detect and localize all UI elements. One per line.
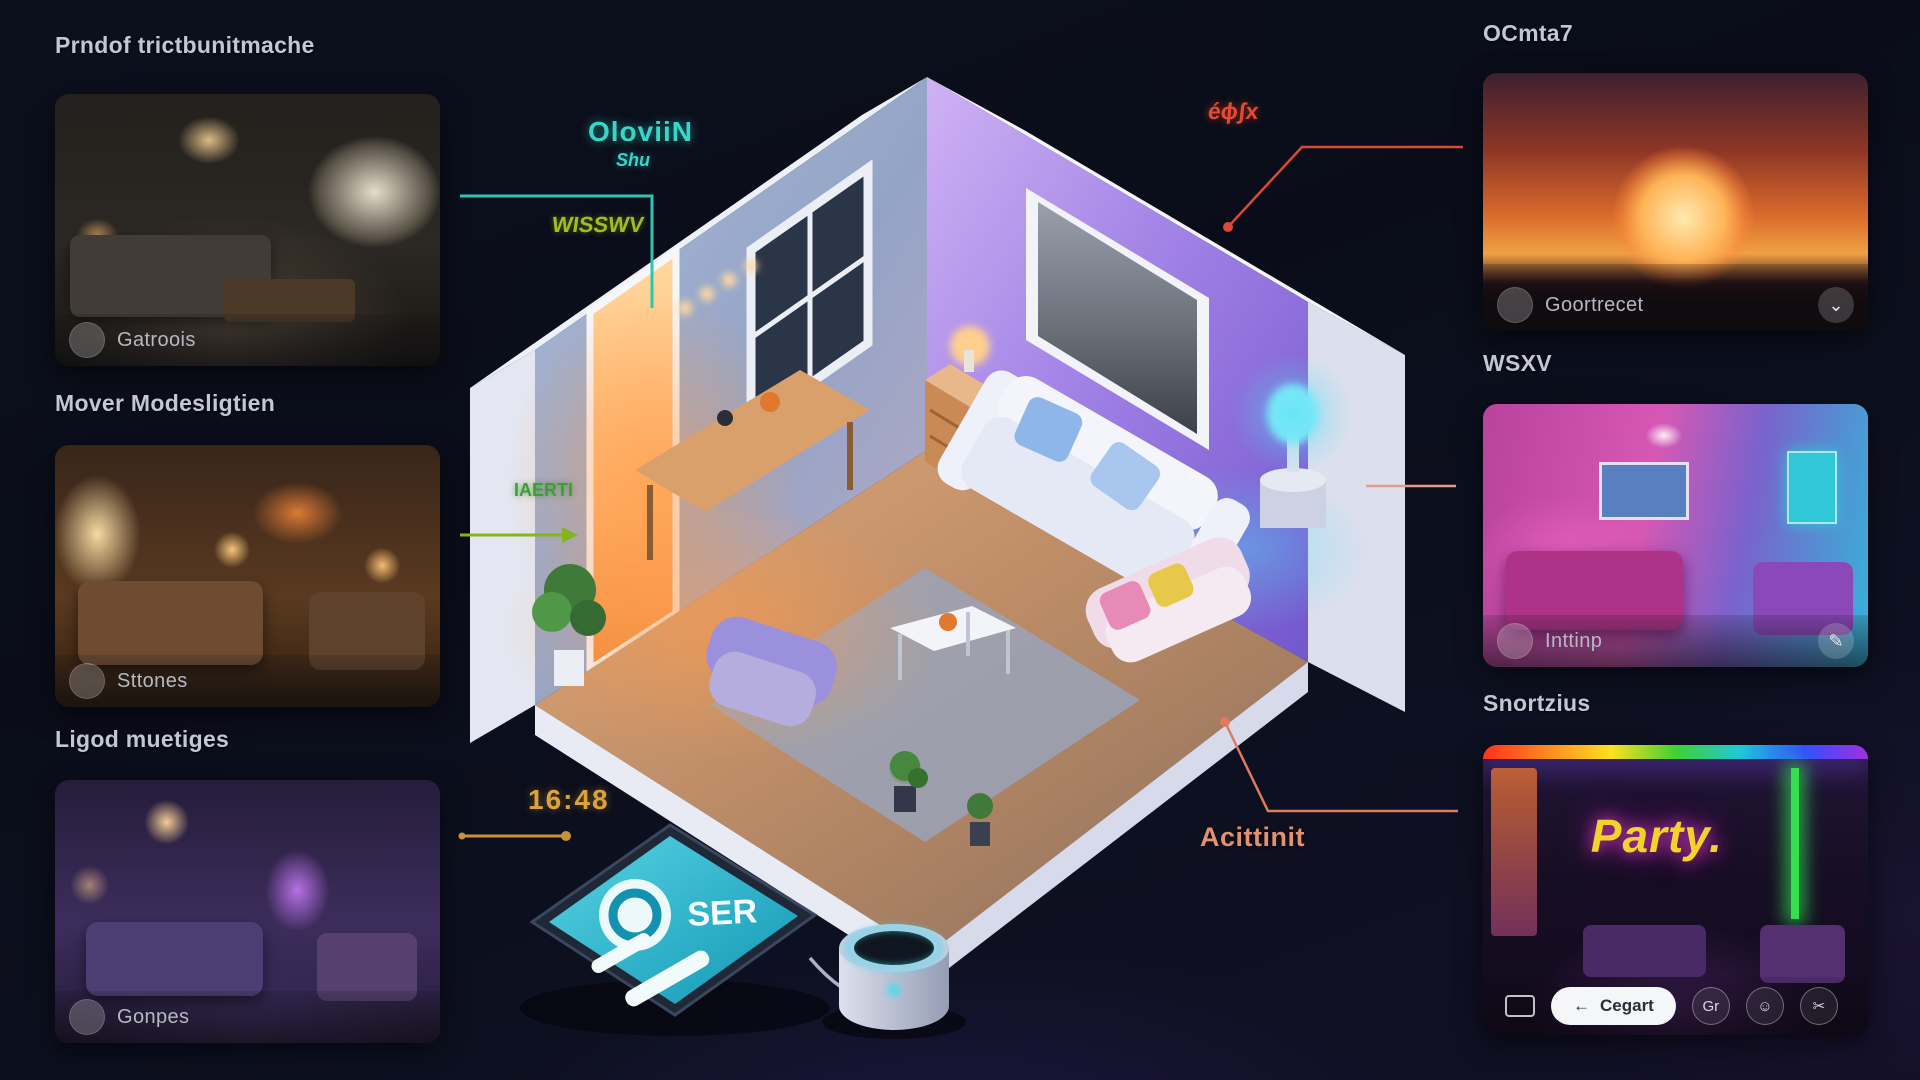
annotation-wall-tag: WISSWV bbox=[550, 212, 645, 238]
scene-card-right-1[interactable]: Goortrecet ⌄ bbox=[1483, 73, 1868, 331]
scene-card-left-1[interactable]: Gatroois bbox=[55, 94, 440, 366]
frame-icon[interactable] bbox=[1505, 995, 1535, 1017]
green-led-strip bbox=[1791, 768, 1799, 919]
pill-label: Cegart bbox=[1600, 996, 1654, 1016]
panel-title-left-1: Prndof trictbunitmache bbox=[55, 32, 315, 59]
party-neon-text: Party. bbox=[1591, 809, 1723, 863]
caption-label: Goortrecet bbox=[1545, 294, 1643, 317]
caption-bar: Goortrecet ⌄ bbox=[1483, 279, 1868, 331]
annotation-door-tag: IAERTI bbox=[514, 480, 573, 501]
avatar bbox=[1497, 623, 1533, 659]
party-toolbar: ← Cegart Gr ☺ ✂ bbox=[1483, 977, 1868, 1035]
avatar bbox=[69, 322, 105, 358]
speaker-led bbox=[888, 984, 900, 996]
tablet-screen-text: SER bbox=[686, 892, 758, 934]
sofa-silhouette bbox=[78, 581, 263, 665]
smart-speaker bbox=[822, 924, 966, 1039]
pencil-icon[interactable]: ✎ bbox=[1818, 623, 1854, 659]
isometric-room-render: SER bbox=[470, 50, 1430, 1040]
panel-title-left-3: Ligod muetiges bbox=[55, 726, 229, 753]
arrow-left-icon: ← bbox=[1573, 996, 1590, 1016]
caption-label: Inttinp bbox=[1545, 630, 1602, 653]
caption-bar: Gatroois bbox=[55, 314, 440, 366]
avatar bbox=[69, 999, 105, 1035]
emoji-button[interactable]: ☺ bbox=[1746, 987, 1784, 1025]
sofa-silhouette bbox=[86, 922, 263, 996]
rainbow-led-strip bbox=[1483, 745, 1868, 759]
smart-home-infographic: Prndof trictbunitmache Gatroois Mover Mo… bbox=[0, 0, 1920, 1080]
neon-frame bbox=[1787, 451, 1837, 523]
scene-card-right-3[interactable]: Party. ← Cegart Gr ☺ ✂ bbox=[1483, 745, 1868, 1035]
scene-card-left-3[interactable]: Gonpes bbox=[55, 780, 440, 1043]
annotation-device-sub: Shu bbox=[616, 150, 650, 171]
wall-frame bbox=[1599, 462, 1690, 521]
panel-title-right-1: OCmta7 bbox=[1483, 20, 1573, 47]
scene-card-left-2[interactable]: Sttones bbox=[55, 445, 440, 707]
panel-title-left-2: Mover Modesligtien bbox=[55, 390, 275, 417]
avatar bbox=[1497, 287, 1533, 323]
caption-label: Gonpes bbox=[117, 1006, 189, 1029]
scissors-button[interactable]: ✂ bbox=[1800, 987, 1838, 1025]
scene-card-right-2[interactable]: Inttinp ✎ bbox=[1483, 404, 1868, 667]
avatar bbox=[69, 663, 105, 699]
annotation-scene-tag: éϕʃx bbox=[1207, 98, 1260, 125]
caption-bar: Sttones bbox=[55, 655, 440, 707]
sofa-silhouette bbox=[1583, 925, 1706, 977]
armchair-silhouette bbox=[1760, 925, 1845, 983]
panel-title-right-2: WSXV bbox=[1483, 350, 1552, 377]
panel-title-right-3: Snortzius bbox=[1483, 690, 1590, 717]
annotation-time: 16:48 bbox=[528, 784, 610, 816]
g-button[interactable]: Gr bbox=[1692, 987, 1730, 1025]
scene-pill-button[interactable]: ← Cegart bbox=[1551, 987, 1676, 1025]
caption-label: Gatroois bbox=[117, 329, 196, 352]
curtain-silhouette bbox=[1491, 768, 1537, 936]
chevron-down-icon[interactable]: ⌄ bbox=[1818, 287, 1854, 323]
caption-bar: Gonpes bbox=[55, 991, 440, 1043]
caption-bar: Inttinp ✎ bbox=[1483, 615, 1868, 667]
caption-label: Sttones bbox=[117, 670, 188, 693]
annotation-device-name: OloviiN bbox=[588, 116, 693, 148]
annotation-activity: Acittinit bbox=[1200, 822, 1305, 853]
